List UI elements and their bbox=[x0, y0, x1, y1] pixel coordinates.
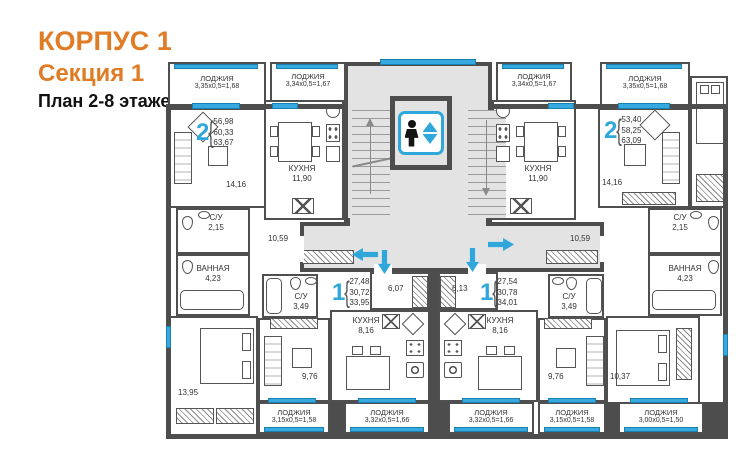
person-icon bbox=[405, 120, 419, 147]
lodge-label: ЛОДЖИЯ3,00х0,5=1,50 bbox=[618, 408, 704, 426]
area-line: 60,33 bbox=[213, 128, 233, 138]
lodge-label: ЛОДЖИЯ3,32х0,5=1,66 bbox=[448, 408, 534, 426]
wardrobe-icon bbox=[622, 192, 676, 205]
room-name: С/У bbox=[660, 213, 700, 223]
chair-icon bbox=[516, 126, 524, 137]
wall-segment bbox=[606, 402, 618, 438]
fridge-icon bbox=[326, 146, 340, 162]
lodge-label: ЛОДЖИЯ3,34х0,5=1,67 bbox=[270, 72, 346, 90]
room-area-label: 10,59 bbox=[268, 234, 288, 244]
elevator-icon bbox=[398, 111, 444, 155]
door-opening bbox=[296, 236, 304, 262]
room-area-label: 6,13 bbox=[452, 284, 468, 294]
floors-subtitle: План 2-8 этажей bbox=[38, 91, 181, 112]
chair-icon bbox=[370, 346, 381, 355]
room-label: КУХНЯ8,16 bbox=[472, 316, 528, 336]
wardrobe-icon bbox=[544, 318, 592, 329]
dining-table-icon bbox=[478, 356, 522, 390]
wardrobe-icon bbox=[676, 328, 692, 380]
room-area: 14,16 bbox=[602, 178, 622, 188]
wall-segment bbox=[166, 104, 171, 439]
apartment-areas: 27,54 30,78 34,01 bbox=[497, 277, 517, 308]
lodge-glass bbox=[624, 427, 698, 432]
door-opening bbox=[600, 236, 608, 262]
wall-segment bbox=[492, 104, 728, 109]
room-label: КУХНЯ11,90 bbox=[500, 164, 576, 184]
lodge-glass bbox=[606, 64, 682, 69]
stove-icon bbox=[444, 340, 462, 356]
lodge-glass bbox=[268, 398, 316, 403]
room-name: КУХНЯ bbox=[338, 316, 394, 326]
lodge-dims: 3,15х0,5=1,58 bbox=[538, 417, 606, 426]
room-name: С/У bbox=[284, 292, 318, 302]
lodge-name: ЛОДЖИЯ bbox=[344, 408, 430, 417]
room-area: 8,16 bbox=[472, 326, 528, 336]
chair-icon bbox=[312, 126, 320, 137]
chair-icon bbox=[352, 346, 363, 355]
floor-plan-page: КОРПУС 1 Секция 1 План 2-8 этажей bbox=[0, 0, 740, 472]
lodge-name: ЛОДЖИЯ bbox=[496, 72, 572, 81]
room-area: 9,76 bbox=[302, 372, 318, 382]
wardrobe-icon bbox=[270, 318, 318, 329]
wall-segment bbox=[430, 270, 438, 402]
room-area: 2,15 bbox=[196, 223, 236, 233]
chair-icon bbox=[486, 346, 497, 355]
room-area: 9,76 bbox=[548, 372, 564, 382]
sink-icon bbox=[552, 277, 564, 285]
apartment-areas: 27,48 30,72 33,95 bbox=[349, 277, 369, 308]
room-label: С/У3,49 bbox=[284, 292, 318, 312]
area-line: 63,09 bbox=[621, 136, 641, 146]
room-label: С/У2,15 bbox=[196, 213, 236, 233]
stair-direction-up-arrow bbox=[366, 116, 376, 198]
room-area: 4,23 bbox=[654, 274, 716, 284]
room-area-label: 6,07 bbox=[388, 284, 404, 294]
apartment-areas: 56,98 60,33 63,67 bbox=[213, 117, 233, 148]
floor-patch bbox=[350, 216, 486, 228]
apartment-label-2-right: 2 { 53,40 58,25 63,09 bbox=[604, 114, 641, 148]
lodge-label: ЛОДЖИЯ3,15х0,5=1,58 bbox=[258, 408, 330, 426]
room-name: С/У bbox=[196, 213, 236, 223]
area-line: 30,72 bbox=[349, 288, 369, 298]
room-name: С/У bbox=[552, 292, 586, 302]
room-area-label: 10,59 bbox=[570, 234, 590, 244]
apartment-areas: 53,40 58,25 63,09 bbox=[621, 115, 641, 146]
apartment-label-1-right: 1 { 27,54 30,78 34,01 bbox=[480, 276, 517, 310]
lodge-label: ЛОДЖИЯ3,35х0,5=1,68 bbox=[168, 74, 266, 92]
apartment-label-1-left: 1 { 27,48 30,72 33,95 bbox=[332, 276, 369, 310]
washing-machine-icon bbox=[406, 362, 424, 378]
lodge-name: ЛОДЖИЯ bbox=[538, 408, 606, 417]
wall-segment bbox=[704, 402, 728, 438]
room-area: 8,16 bbox=[338, 326, 394, 336]
wardrobe-icon bbox=[412, 276, 428, 308]
lodge-dims: 3,35х0,5=1,68 bbox=[168, 83, 266, 92]
coffee-table-icon bbox=[556, 348, 576, 368]
lodge-glass bbox=[544, 427, 600, 432]
wardrobe-icon bbox=[216, 408, 254, 424]
bathtub-icon bbox=[652, 290, 716, 310]
chair-icon bbox=[270, 126, 278, 137]
kitchen-sink-icon bbox=[510, 198, 532, 214]
stove-icon bbox=[326, 124, 340, 142]
area-line: 33,95 bbox=[349, 298, 369, 308]
room-area-label: 14,16 bbox=[226, 180, 246, 190]
lodge-glass bbox=[502, 64, 564, 69]
lodge-glass bbox=[350, 427, 424, 432]
room-area-label: 14,16 bbox=[602, 178, 622, 188]
wardrobe-icon bbox=[546, 250, 598, 264]
brace-glyph: { bbox=[345, 276, 351, 310]
lodge-name: ЛОДЖИЯ bbox=[258, 408, 330, 417]
dining-table-icon bbox=[278, 122, 312, 162]
lodge-glass bbox=[454, 427, 528, 432]
window-glass bbox=[618, 103, 670, 109]
room-area-label: 9,76 bbox=[548, 372, 564, 382]
bathtub-icon bbox=[180, 290, 244, 310]
room-area: 3,49 bbox=[284, 302, 318, 312]
wardrobe-icon bbox=[302, 250, 354, 264]
window-glass bbox=[192, 103, 240, 109]
area-line: 56,98 bbox=[213, 117, 233, 127]
bathtub-icon bbox=[266, 278, 282, 314]
apartment-label-2-left: 2 { 56,98 60,33 63,67 bbox=[196, 116, 233, 150]
area-line: 34,01 bbox=[497, 298, 517, 308]
room-area: 13,95 bbox=[178, 388, 198, 398]
sofa-icon bbox=[586, 336, 604, 386]
room-area-label: 9,76 bbox=[302, 372, 318, 382]
room-area: 11,90 bbox=[500, 174, 576, 184]
lodge-label: ЛОДЖИЯ3,34х0,5=1,67 bbox=[496, 72, 572, 90]
up-down-arrows-icon bbox=[423, 122, 438, 144]
stove-icon bbox=[496, 124, 510, 142]
room-name: КУХНЯ bbox=[500, 164, 576, 174]
area-line: 63,67 bbox=[213, 138, 233, 148]
room-name: КУХНЯ bbox=[472, 316, 528, 326]
room-area: 14,16 bbox=[226, 180, 246, 190]
brace-glyph: { bbox=[209, 116, 215, 150]
chair-icon bbox=[312, 146, 320, 157]
dining-table-icon bbox=[524, 122, 558, 162]
area-line: 30,78 bbox=[497, 288, 517, 298]
sofa-icon bbox=[264, 336, 282, 386]
room-label: С/У3,49 bbox=[552, 292, 586, 312]
lodge-dims: 3,34х0,5=1,67 bbox=[270, 81, 346, 90]
lodge-label: ЛОДЖИЯ3,15х0,5=1,58 bbox=[538, 408, 606, 426]
lodge-glass bbox=[264, 427, 324, 432]
room-label: КУХНЯ11,90 bbox=[264, 164, 340, 184]
room-area: 11,90 bbox=[264, 174, 340, 184]
sofa-icon bbox=[174, 132, 192, 184]
lodge-name: ЛОДЖИЯ bbox=[600, 74, 690, 83]
lodge-glass bbox=[462, 398, 520, 403]
chair-icon bbox=[558, 126, 566, 137]
room-name: ВАННАЯ bbox=[654, 264, 716, 274]
window-glass bbox=[166, 326, 171, 348]
room-area: 4,23 bbox=[182, 274, 244, 284]
room-area-label: 10,37 bbox=[610, 372, 630, 382]
lodge-dims: 3,34х0,5=1,67 bbox=[496, 81, 572, 90]
lodge-dims: 3,35х0,5=1,68 bbox=[600, 83, 690, 92]
room-label: С/У2,15 bbox=[660, 213, 700, 233]
sink-icon bbox=[305, 277, 317, 285]
lodge-dims: 3,00х0,5=1,50 bbox=[618, 417, 704, 426]
washing-machine-icon bbox=[444, 362, 462, 378]
stair-direction-down-arrow bbox=[482, 116, 492, 198]
lodge-name: ЛОДЖИЯ bbox=[168, 74, 266, 83]
lodge-name: ЛОДЖИЯ bbox=[270, 72, 346, 81]
lodge-label: ЛОДЖИЯ3,35х0,5=1,68 bbox=[600, 74, 690, 92]
chair-icon bbox=[504, 346, 515, 355]
room-area: 6,13 bbox=[452, 284, 468, 294]
lodge-glass bbox=[358, 398, 416, 403]
room-area: 2,15 bbox=[660, 223, 700, 233]
lodge-glass bbox=[276, 64, 338, 69]
dining-table-icon bbox=[346, 356, 390, 390]
bed-icon bbox=[696, 82, 724, 144]
stove-icon bbox=[406, 340, 424, 356]
title-block: КОРПУС 1 Секция 1 План 2-8 этажей bbox=[38, 26, 181, 112]
wardrobe-icon bbox=[696, 174, 724, 202]
room-label: КУХНЯ8,16 bbox=[338, 316, 394, 336]
building-title: КОРПУС 1 bbox=[38, 26, 181, 58]
wall-segment bbox=[330, 402, 344, 438]
area-line: 53,40 bbox=[621, 115, 641, 125]
room-name: ВАННАЯ bbox=[182, 264, 244, 274]
area-line: 58,25 bbox=[621, 126, 641, 136]
window-glass bbox=[723, 334, 728, 356]
room-area: 10,59 bbox=[268, 234, 288, 244]
room-area: 10,59 bbox=[570, 234, 590, 244]
elevator-shaft bbox=[390, 96, 452, 170]
chair-icon bbox=[516, 146, 524, 157]
stairwell-window-glass bbox=[380, 59, 476, 65]
floor-plan: 2 { 56,98 60,33 63,67 1 { 27,48 30,72 33… bbox=[166, 58, 740, 448]
bathtub-icon bbox=[586, 278, 602, 314]
lodge-dims: 3,15х0,5=1,58 bbox=[258, 417, 330, 426]
brace-glyph: { bbox=[493, 276, 499, 310]
room-area: 6,07 bbox=[388, 284, 404, 294]
lodge-name: ЛОДЖИЯ bbox=[618, 408, 704, 417]
coffee-table-icon bbox=[292, 348, 312, 368]
lodge-dims: 3,32х0,5=1,66 bbox=[448, 417, 534, 426]
lodge-dims: 3,32х0,5=1,66 bbox=[344, 417, 430, 426]
sofa-icon bbox=[662, 132, 680, 184]
window-glass bbox=[548, 103, 574, 109]
room-label: ВАННАЯ4,23 bbox=[182, 264, 244, 284]
wall-segment bbox=[430, 402, 448, 438]
bed-icon bbox=[200, 328, 254, 384]
lodge-name: ЛОДЖИЯ bbox=[448, 408, 534, 417]
room-area-label: 13,95 bbox=[178, 388, 198, 398]
room-area: 3,49 bbox=[552, 302, 586, 312]
chair-icon bbox=[270, 146, 278, 157]
fridge-icon bbox=[496, 146, 510, 162]
room-label: ВАННАЯ4,23 bbox=[654, 264, 716, 284]
corridor bbox=[300, 222, 604, 272]
section-title: Секция 1 bbox=[38, 60, 181, 88]
brace-glyph: { bbox=[617, 114, 623, 148]
kitchen-sink-icon bbox=[292, 198, 314, 214]
room-name: КУХНЯ bbox=[264, 164, 340, 174]
room-area: 10,37 bbox=[610, 372, 630, 382]
area-line: 27,54 bbox=[497, 277, 517, 287]
lodge-glass bbox=[630, 398, 688, 403]
chair-icon bbox=[558, 146, 566, 157]
lodge-label: ЛОДЖИЯ3,32х0,5=1,66 bbox=[344, 408, 430, 426]
lodge-glass bbox=[548, 398, 596, 403]
wardrobe-icon bbox=[176, 408, 214, 424]
area-line: 27,48 bbox=[349, 277, 369, 287]
wall-segment bbox=[723, 104, 728, 439]
lodge-glass bbox=[174, 64, 258, 69]
window-glass bbox=[272, 103, 298, 109]
